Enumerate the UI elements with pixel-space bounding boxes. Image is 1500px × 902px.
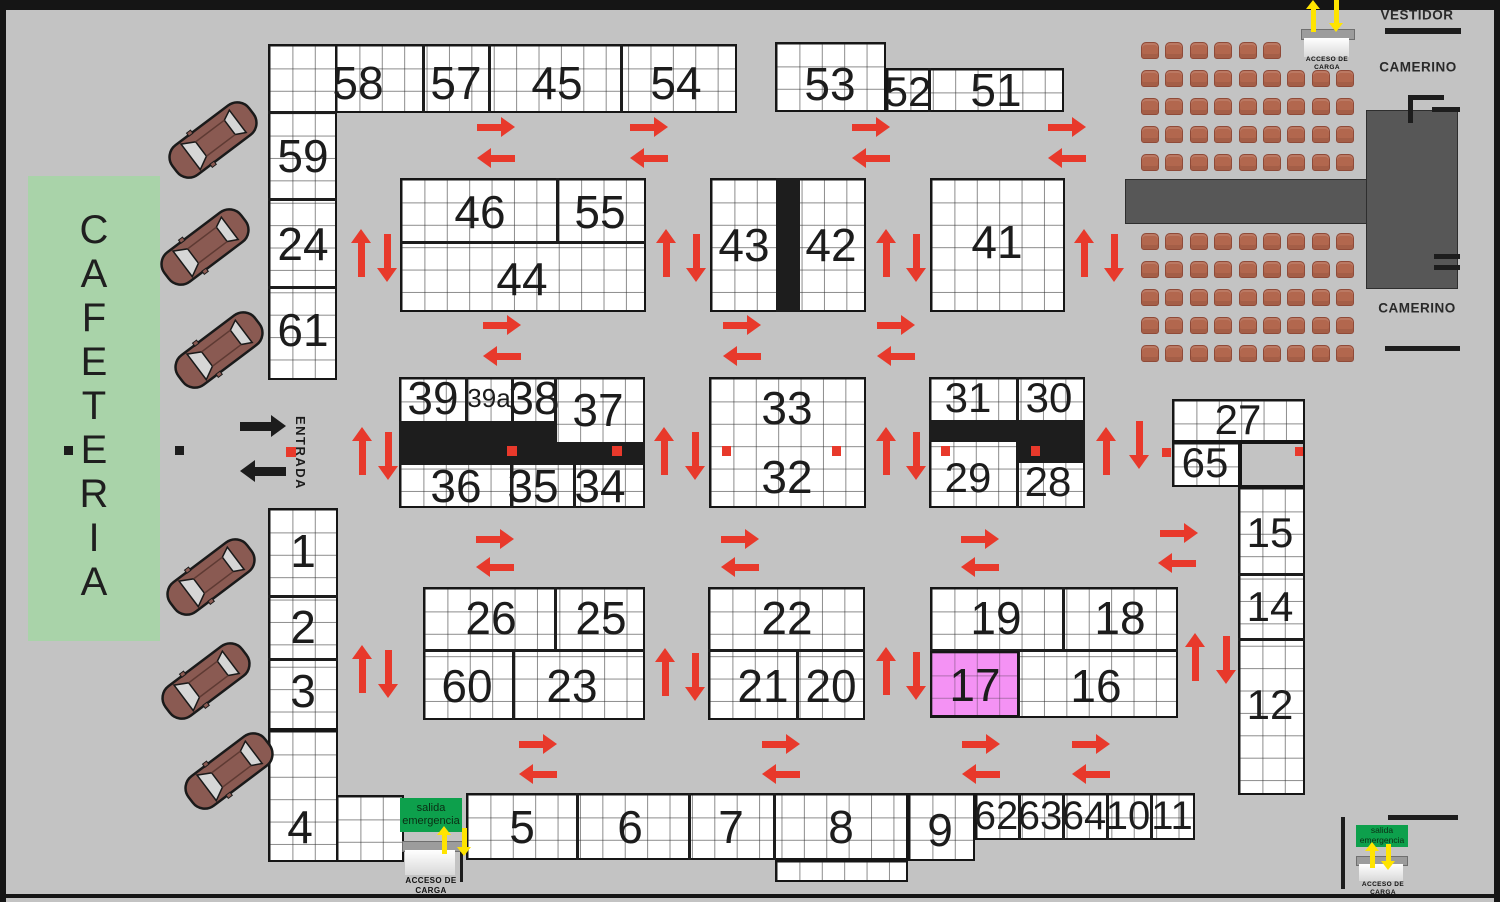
audience-chair <box>1239 42 1257 59</box>
direction-arrow-down <box>906 432 926 480</box>
divider-wall <box>268 595 338 598</box>
arrow-shaft <box>495 353 521 360</box>
audience-chair <box>1239 345 1257 362</box>
direction-arrow-left <box>723 346 761 366</box>
arrow-head <box>240 460 255 482</box>
arrow-head <box>437 826 451 835</box>
booth-37-label: 37 <box>572 387 623 433</box>
direction-arrow-right <box>477 117 515 137</box>
arrow-shaft <box>974 771 1000 778</box>
wall-line <box>1385 346 1460 351</box>
audience-chair <box>1312 289 1330 306</box>
direction-arrow-down <box>378 432 398 480</box>
booth-23-label: 23 <box>546 663 597 709</box>
booth-57-label: 57 <box>430 60 481 106</box>
divider-wall <box>1016 463 1019 508</box>
direction-arrow-down <box>1329 0 1343 32</box>
map-border-top <box>0 0 1500 10</box>
arrow-head <box>876 117 890 137</box>
loading-access-label: ACCESO DECARGA <box>1306 56 1348 72</box>
direction-arrow-right <box>483 315 521 335</box>
direction-arrow-left <box>483 346 521 366</box>
booth-53-label: 53 <box>804 61 855 107</box>
divider-wall <box>576 793 579 860</box>
arrow-shaft <box>662 660 669 696</box>
audience-chair <box>1141 98 1159 115</box>
booth-28-label: 28 <box>1025 461 1072 503</box>
direction-arrow-up <box>656 229 676 277</box>
direction-arrow-right <box>721 529 759 549</box>
audience-chair <box>1263 233 1281 250</box>
divider-wall <box>776 178 800 312</box>
direction-arrow-up <box>654 427 674 475</box>
black-marker <box>175 446 184 455</box>
red-marker <box>722 446 731 456</box>
divider-wall <box>556 178 559 244</box>
arrow-head <box>477 148 491 168</box>
arrow-shaft <box>1370 849 1375 868</box>
arrow-shaft <box>1136 421 1143 457</box>
arrow-shaft <box>883 439 890 475</box>
audience-chair <box>1336 289 1354 306</box>
arrow-shaft <box>852 124 878 131</box>
arrow-shaft <box>1103 439 1110 475</box>
cafeteria-letter: C <box>80 210 109 250</box>
direction-arrow-left <box>962 764 1000 784</box>
audience-chair <box>1190 233 1208 250</box>
arrow-shaft <box>1084 771 1110 778</box>
arrow-head <box>378 684 398 698</box>
emergency-exit-text: emergencia <box>402 815 459 828</box>
audience-chair <box>1239 154 1257 171</box>
direction-arrow-left <box>630 148 668 168</box>
audience-chair <box>1165 261 1183 278</box>
arrow-head <box>654 117 668 137</box>
booth-5-label: 5 <box>509 804 535 850</box>
parked-car <box>158 529 264 624</box>
arrow-shaft <box>253 467 286 476</box>
direction-arrow-up <box>1096 427 1116 475</box>
audience-chair <box>1214 42 1232 59</box>
arrow-head <box>352 427 372 441</box>
booth-30-label: 30 <box>1026 377 1073 419</box>
arrow-head <box>852 148 866 168</box>
arrow-head <box>1381 861 1395 870</box>
direction-arrow-left <box>1048 148 1086 168</box>
booth-64-label: 64 <box>1062 796 1107 836</box>
arrow-shaft <box>1170 560 1196 567</box>
direction-arrow-up <box>876 647 896 695</box>
arrow-head <box>271 415 286 437</box>
cafeteria-letter: I <box>88 518 99 558</box>
loading-access-door <box>1304 38 1349 57</box>
audience-chair <box>1165 98 1183 115</box>
audience-chair <box>1263 261 1281 278</box>
arrow-head <box>655 648 675 662</box>
map-border-bottom <box>0 894 1500 898</box>
booth-46-label: 46 <box>454 189 505 235</box>
direction-arrow-right <box>1048 117 1086 137</box>
arrow-shaft <box>358 241 365 277</box>
emergency-exit-sign: salidaemergencia <box>400 798 462 832</box>
audience-chair <box>1141 317 1159 334</box>
audience-chair <box>1336 154 1354 171</box>
arrow-shaft <box>1048 124 1074 131</box>
audience-chair <box>1214 345 1232 362</box>
arrow-shaft <box>973 564 999 571</box>
booth-42-label: 42 <box>805 222 856 268</box>
arrow-shaft <box>961 536 987 543</box>
audience-chair <box>1141 261 1159 278</box>
arrow-shaft <box>642 155 668 162</box>
audience-chair <box>1214 233 1232 250</box>
booth-17-label: 17 <box>949 662 1000 708</box>
direction-arrow-up <box>1185 633 1205 681</box>
booth-19-label: 19 <box>970 595 1021 641</box>
audience-chair <box>1190 126 1208 143</box>
arrow-shaft <box>531 771 557 778</box>
parked-car <box>160 92 266 187</box>
direction-arrow-up <box>351 229 371 277</box>
arrow-shaft <box>462 828 467 849</box>
arrow-head <box>1365 842 1379 851</box>
arrow-shaft <box>385 650 392 686</box>
arrow-shaft <box>240 422 273 431</box>
loading-access-label: ACCESO DECARGA <box>405 876 456 895</box>
wall-line <box>1434 265 1460 270</box>
direction-arrow-right <box>519 734 557 754</box>
booth-39a-label: 39a <box>467 385 510 411</box>
arrow-shaft <box>488 564 514 571</box>
cafeteria-letter: T <box>82 386 106 426</box>
audience-chair <box>1214 289 1232 306</box>
arrow-shaft <box>483 322 509 329</box>
audience-chair <box>1239 98 1257 115</box>
direction-arrow-left <box>476 557 514 577</box>
arrow-head <box>1048 148 1062 168</box>
booth-grid-block <box>336 795 404 862</box>
booth-61-label: 61 <box>277 307 328 353</box>
arrow-shaft <box>1081 241 1088 277</box>
audience-chair <box>1239 233 1257 250</box>
wall-line <box>1385 28 1461 34</box>
arrow-head <box>543 734 557 754</box>
arrow-head <box>762 764 776 784</box>
exhibition-floor-plan: CAFETERIA ENTRADA VESTIDOR CAMERINO CAME… <box>0 0 1500 902</box>
booth-26-label: 26 <box>465 595 516 641</box>
wall-line <box>1408 95 1444 100</box>
audience-chair <box>1312 345 1330 362</box>
audience-chair <box>1190 98 1208 115</box>
arrow-head <box>986 734 1000 754</box>
booth-52-label: 52 <box>885 71 932 113</box>
direction-arrow-right <box>852 117 890 137</box>
audience-chair <box>1190 317 1208 334</box>
arrow-head <box>483 346 497 366</box>
arrow-shaft <box>774 771 800 778</box>
booth-6-label: 6 <box>617 804 643 850</box>
arrow-head <box>457 847 471 856</box>
booth-18-label: 18 <box>1094 595 1145 641</box>
audience-chair <box>1287 345 1305 362</box>
cafeteria-letter: E <box>81 342 108 382</box>
audience-chair <box>1287 154 1305 171</box>
audience-chair <box>1141 233 1159 250</box>
audience-chair <box>1287 98 1305 115</box>
audience-chair <box>1165 42 1183 59</box>
divider-wall <box>620 44 623 113</box>
audience-chair <box>1287 126 1305 143</box>
booth-21-label: 21 <box>737 663 788 709</box>
arrow-head <box>377 268 397 282</box>
audience-chair <box>1336 261 1354 278</box>
audience-chair <box>1312 154 1330 171</box>
arrow-shaft <box>864 155 890 162</box>
arrow-head <box>1216 670 1236 684</box>
direction-arrow-left <box>852 148 890 168</box>
arrow-shaft <box>692 653 699 689</box>
booth-36-label: 36 <box>430 463 481 509</box>
arrow-head <box>476 557 490 577</box>
arrow-head <box>1072 764 1086 784</box>
arrow-head <box>654 427 674 441</box>
audience-chair <box>1214 98 1232 115</box>
booth-9-label: 9 <box>927 807 953 853</box>
booth-44-label: 44 <box>496 256 547 302</box>
audience-chair <box>1165 126 1183 143</box>
emergency-exit-text: salida <box>417 802 446 815</box>
divider-wall <box>268 198 337 201</box>
direction-arrow-left <box>721 557 759 577</box>
arrow-shaft <box>630 124 656 131</box>
divider-wall <box>708 649 865 652</box>
direction-arrow-left <box>1158 553 1196 573</box>
arrow-head <box>507 315 521 335</box>
arrow-shaft <box>384 234 391 270</box>
arrow-head <box>906 466 926 480</box>
divider-wall <box>400 241 646 244</box>
divider-wall <box>773 793 776 860</box>
direction-arrow-right <box>1160 523 1198 543</box>
arrow-head <box>1306 0 1320 9</box>
audience-chair <box>1190 70 1208 87</box>
red-marker <box>507 446 517 456</box>
arrow-head <box>745 529 759 549</box>
booth-4-label: 4 <box>287 804 313 850</box>
arrow-shaft <box>721 536 747 543</box>
booth-39-label: 39 <box>407 375 458 421</box>
red-marker <box>286 447 296 457</box>
divider-wall <box>399 421 557 465</box>
loading-access-text: CARGA <box>1306 64 1348 72</box>
camerino-top-label: CAMERINO <box>1379 60 1457 75</box>
audience-chair <box>1190 261 1208 278</box>
audience-chair <box>1214 261 1232 278</box>
audience-chair <box>1263 289 1281 306</box>
direction-arrow-down <box>378 650 398 698</box>
arrow-head <box>1184 523 1198 543</box>
arrow-shaft <box>489 155 515 162</box>
booth-25-label: 25 <box>575 595 626 641</box>
arrow-shaft <box>1192 645 1199 681</box>
arrow-head <box>962 764 976 784</box>
booth-15-label: 15 <box>1247 512 1294 554</box>
booth-33-label: 33 <box>761 385 812 431</box>
audience-chair <box>1263 345 1281 362</box>
booth-45-label: 45 <box>531 60 582 106</box>
arrow-head <box>686 268 706 282</box>
audience-chair <box>1287 70 1305 87</box>
arrow-shaft <box>723 322 749 329</box>
arrow-head <box>723 346 737 366</box>
red-marker <box>612 446 622 456</box>
arrow-head <box>906 268 926 282</box>
cafeteria-letter: R <box>80 474 109 514</box>
arrow-shaft <box>1111 234 1118 270</box>
direction-arrow-left <box>877 346 915 366</box>
arrow-head <box>721 557 735 577</box>
booth-1-label: 1 <box>290 528 316 574</box>
booth-62-label: 62 <box>974 796 1019 836</box>
arrow-head <box>1096 427 1116 441</box>
booth-7-label: 7 <box>718 804 744 850</box>
direction-arrow-down <box>906 652 926 700</box>
audience-chair <box>1263 98 1281 115</box>
arrow-shaft <box>1160 530 1186 537</box>
audience-chair <box>1141 289 1159 306</box>
booth-59-label: 59 <box>277 133 328 179</box>
audience-chair <box>1287 317 1305 334</box>
audience-chair <box>1214 70 1232 87</box>
booth-51-label: 51 <box>970 67 1021 113</box>
direction-arrow-up <box>876 427 896 475</box>
booth-12-label: 12 <box>1247 684 1294 726</box>
parked-car <box>152 199 258 294</box>
booth-65-label: 65 <box>1182 442 1229 484</box>
map-border-right <box>1494 0 1500 902</box>
arrow-head <box>630 148 644 168</box>
loading-access-text: ACCESO DE <box>1306 56 1348 64</box>
arrow-head <box>1096 734 1110 754</box>
camerino-bottom-label: CAMERINO <box>1378 301 1456 316</box>
audience-chair <box>1312 233 1330 250</box>
audience-chair <box>1312 98 1330 115</box>
arrow-shaft <box>359 439 366 475</box>
red-marker <box>1162 448 1171 457</box>
audience-chair <box>1312 70 1330 87</box>
arrow-shaft <box>883 659 890 695</box>
audience-chair <box>1239 70 1257 87</box>
direction-arrow-left <box>519 764 557 784</box>
divider-wall <box>688 793 691 860</box>
audience-chair <box>1141 126 1159 143</box>
arrow-head <box>786 734 800 754</box>
cafeteria-letter: A <box>81 254 108 294</box>
arrow-shaft <box>359 657 366 693</box>
audience-chair <box>1312 261 1330 278</box>
booth-54-label: 54 <box>650 60 701 106</box>
divider-wall <box>512 652 515 720</box>
audience-chair <box>1312 126 1330 143</box>
booth-63-label: 63 <box>1018 796 1063 836</box>
direction-arrow-down <box>1129 421 1149 469</box>
direction-arrow-left <box>762 764 800 784</box>
arrow-head <box>351 229 371 243</box>
stage-platform <box>1125 179 1368 224</box>
booth-22-label: 22 <box>761 595 812 641</box>
arrow-shaft <box>385 432 392 468</box>
audience-chair <box>1263 70 1281 87</box>
divider-wall <box>1062 587 1065 649</box>
booth-31-label: 31 <box>945 377 992 419</box>
wall-line <box>1432 107 1460 112</box>
arrow-head <box>501 117 515 137</box>
arrow-head <box>901 315 915 335</box>
booth-grid-block <box>775 860 908 882</box>
cafeteria-area: CAFETERIA <box>28 176 160 641</box>
loading-access-text: ACCESO DE <box>405 876 456 886</box>
booth-38-label: 38 <box>508 375 559 421</box>
arrow-head <box>876 229 896 243</box>
audience-chair <box>1312 317 1330 334</box>
direction-arrow-down <box>685 432 705 480</box>
arrow-shaft <box>1334 0 1339 25</box>
divider-wall <box>422 44 425 113</box>
arrow-head <box>961 557 975 577</box>
direction-arrow-right <box>476 529 514 549</box>
booth-41-label: 41 <box>971 219 1022 265</box>
audience-chair <box>1214 126 1232 143</box>
booth-58-label: 58 <box>332 60 383 106</box>
loading-access-text: ACCESO DE <box>1362 881 1404 889</box>
direction-arrow-right <box>240 415 286 437</box>
arrow-head <box>747 315 761 335</box>
wall-line <box>1388 815 1458 820</box>
red-marker <box>941 446 950 456</box>
audience-chair <box>1336 70 1354 87</box>
divider-wall <box>268 658 338 661</box>
audience-chair <box>1239 126 1257 143</box>
audience-chair <box>1190 289 1208 306</box>
wall-line <box>1434 254 1460 259</box>
direction-arrow-up <box>1074 229 1094 277</box>
direction-arrow-right <box>962 734 1000 754</box>
direction-arrow-right <box>1072 734 1110 754</box>
audience-chair <box>1214 317 1232 334</box>
parked-car <box>166 302 272 397</box>
audience-chair <box>1263 154 1281 171</box>
audience-chair <box>1165 317 1183 334</box>
booth-20-label: 20 <box>805 663 856 709</box>
direction-arrow-up <box>1306 0 1320 32</box>
booth-60-label: 60 <box>441 663 492 709</box>
direction-arrow-left <box>477 148 515 168</box>
audience-chair <box>1263 126 1281 143</box>
direction-arrow-down <box>686 234 706 282</box>
audience-chair <box>1336 317 1354 334</box>
arrow-shaft <box>735 353 761 360</box>
audience-chair <box>1214 154 1232 171</box>
audience-chair <box>1165 233 1183 250</box>
arrow-shaft <box>661 439 668 475</box>
wall-line <box>1341 817 1345 889</box>
arrow-shaft <box>1311 7 1316 32</box>
audience-chair <box>1239 317 1257 334</box>
audience-chair <box>1190 345 1208 362</box>
divider-wall <box>1238 573 1305 576</box>
arrow-head <box>877 346 891 366</box>
direction-arrow-up <box>352 645 372 693</box>
